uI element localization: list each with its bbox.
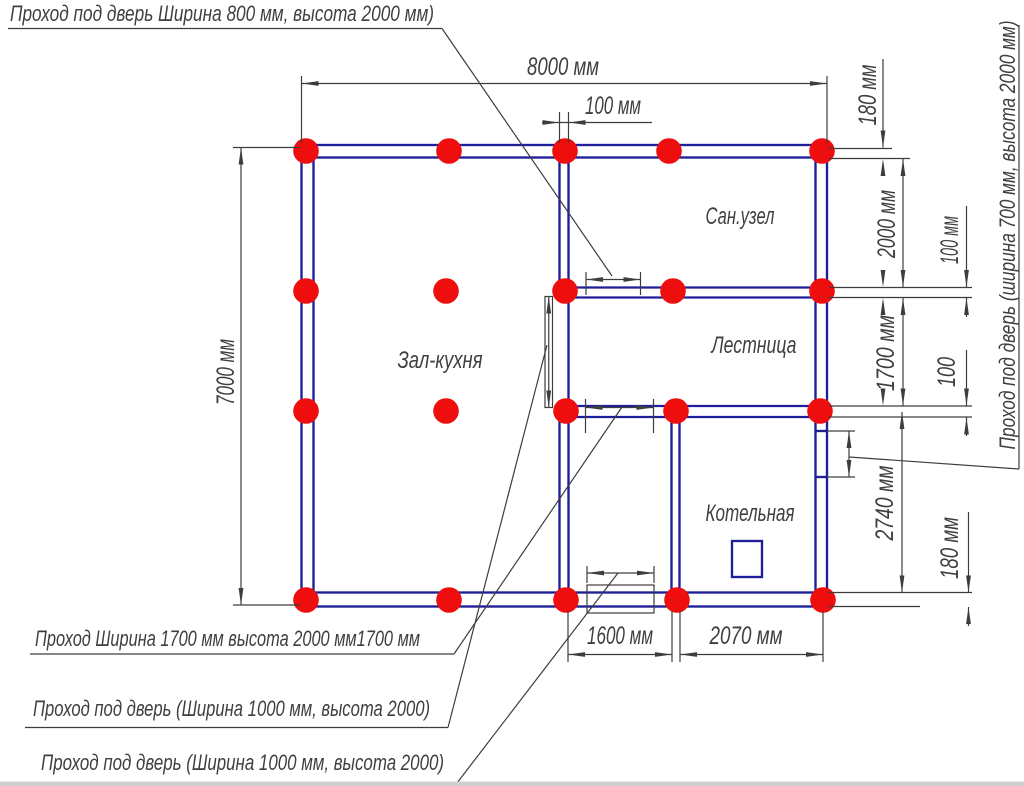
svg-text:Зал-кухня: Зал-кухня <box>398 347 483 374</box>
svg-text:Проход под дверь (Ширина 1000: Проход под дверь (Ширина 1000 мм, высота… <box>41 750 444 775</box>
svg-text:100 мм: 100 мм <box>585 92 641 120</box>
svg-text:180 мм: 180 мм <box>854 65 882 126</box>
svg-text:2740 мм: 2740 мм <box>871 466 899 542</box>
svg-text:Лестница: Лестница <box>710 332 796 359</box>
svg-text:2000 мм: 2000 мм <box>873 190 901 259</box>
svg-text:Котельная: Котельная <box>706 500 795 527</box>
svg-text:1700 мм: 1700 мм <box>872 315 900 391</box>
svg-text:8000 мм: 8000 мм <box>527 53 599 81</box>
svg-text:Сан.узел: Сан.узел <box>706 203 775 230</box>
svg-text:Проход под дверь Ширина 800 мм: Проход под дверь Ширина 800 мм, высота 2… <box>10 1 434 26</box>
svg-text:Проход Ширина 1700 мм высота 2: Проход Ширина 1700 мм высота 2000 мм1700… <box>35 626 420 651</box>
svg-text:180 мм: 180 мм <box>936 517 964 579</box>
svg-text:100: 100 <box>933 357 961 387</box>
svg-text:Проход под дверь (Ширина 1000: Проход под дверь (Ширина 1000 мм, высота… <box>33 696 430 721</box>
svg-text:2070 мм: 2070 мм <box>709 622 783 650</box>
svg-text:100 мм: 100 мм <box>936 216 964 264</box>
svg-text:Проход под дверь (ширина 700 м: Проход под дверь (ширина 700 мм, высота … <box>995 21 1020 450</box>
svg-text:7000 мм: 7000 мм <box>212 339 240 405</box>
svg-text:1600 мм: 1600 мм <box>587 622 653 650</box>
